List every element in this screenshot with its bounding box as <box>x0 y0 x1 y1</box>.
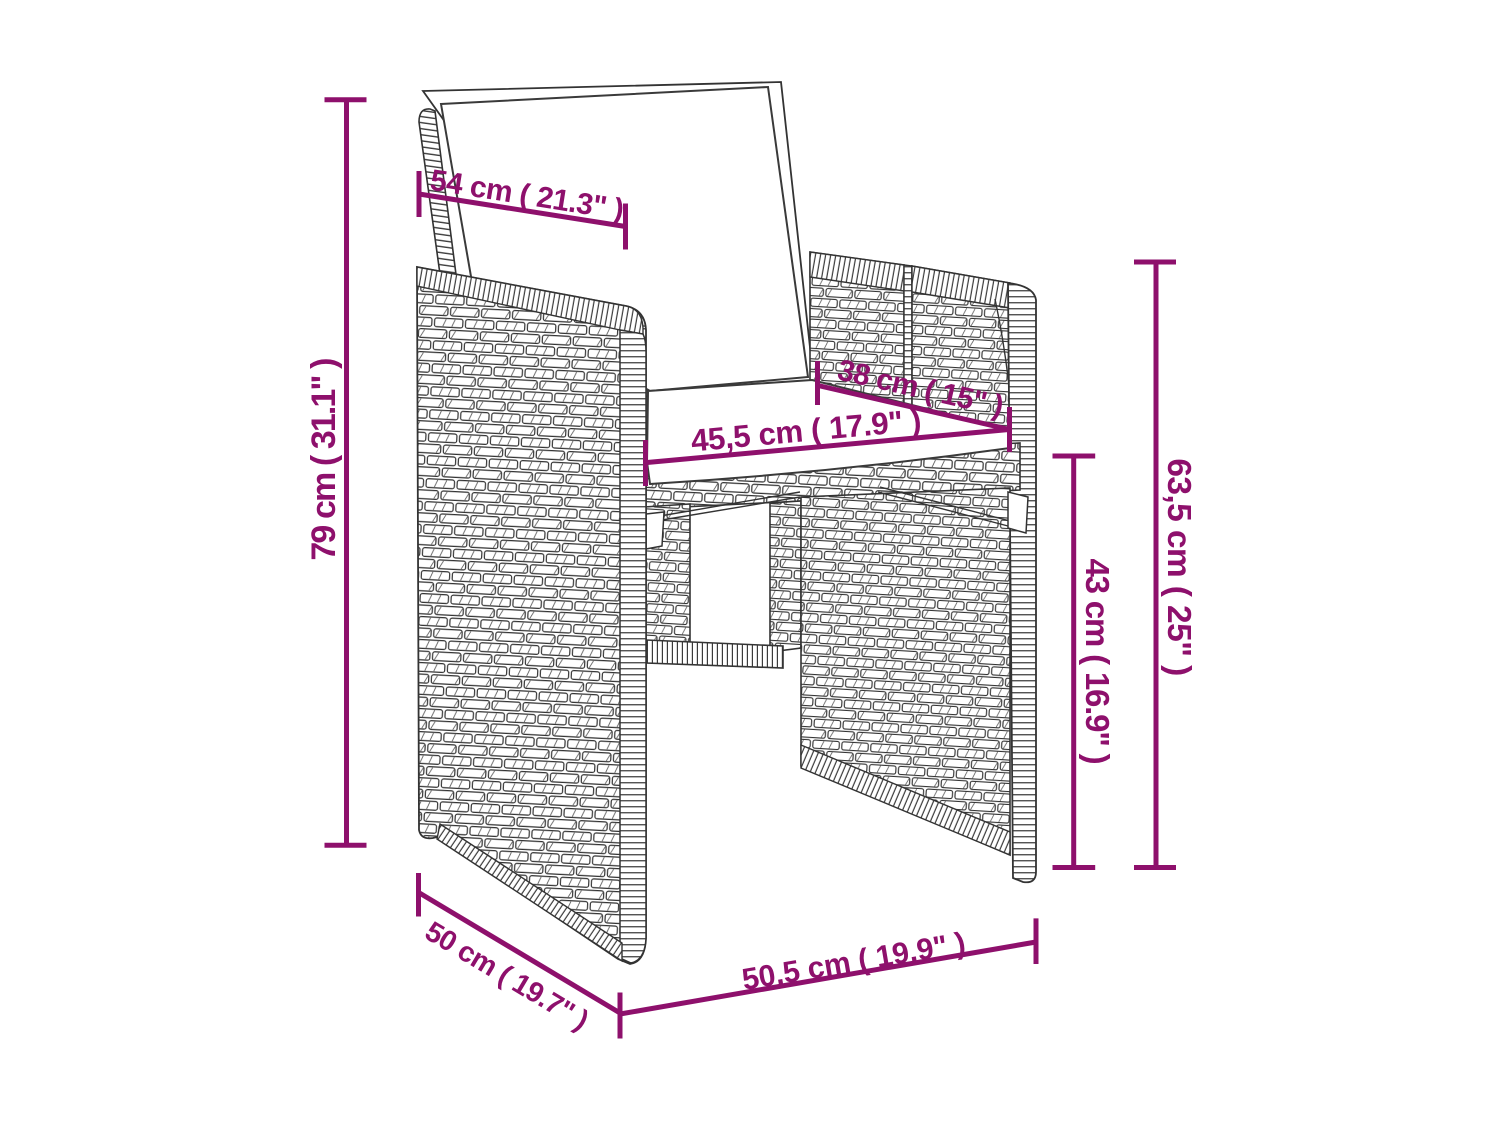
svg-text:63,5 cm ( 25" ): 63,5 cm ( 25" ) <box>1160 458 1197 675</box>
svg-text:43 cm ( 16.9" ): 43 cm ( 16.9" ) <box>1079 559 1116 764</box>
svg-text:79 cm ( 31.1" ): 79 cm ( 31.1" ) <box>305 359 343 561</box>
